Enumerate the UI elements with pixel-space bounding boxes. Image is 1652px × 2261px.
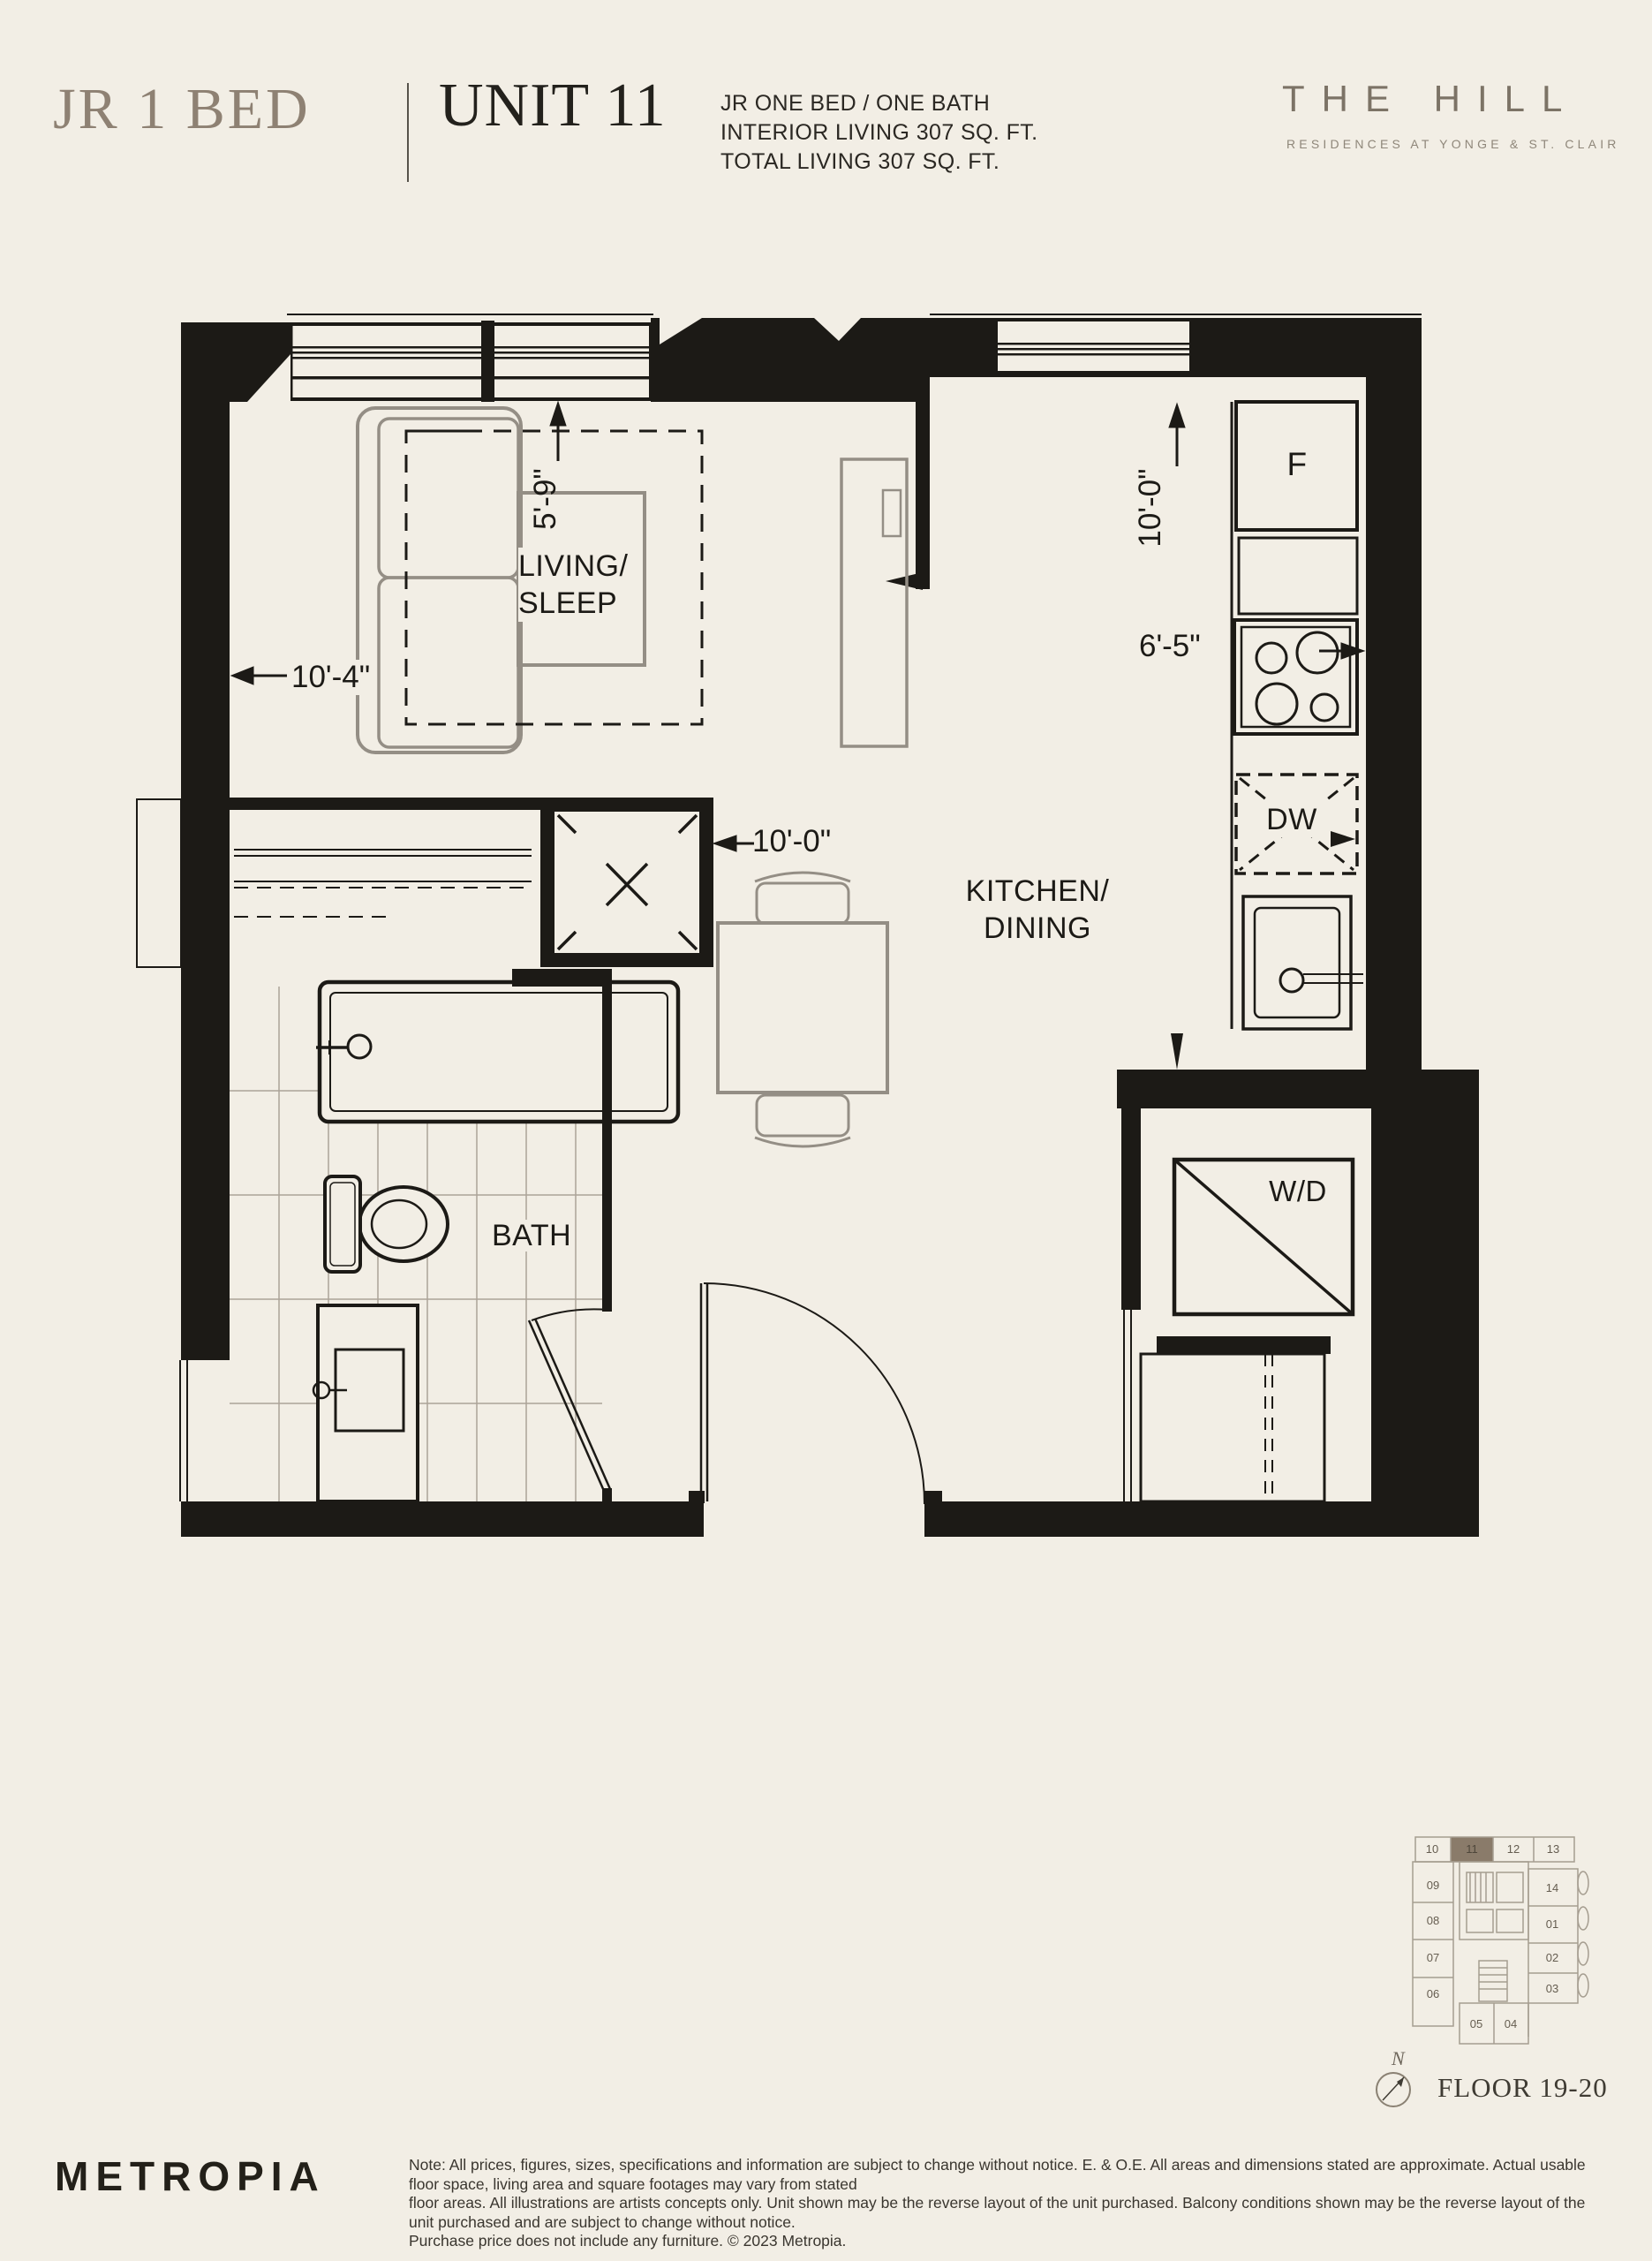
brand-logo: THE HILL <box>1282 78 1579 120</box>
spec-interior-living: INTERIOR LIVING 307 SQ. FT. <box>720 118 1038 147</box>
disclaimer-line-3: Purchase price does not include any furn… <box>409 2232 1614 2251</box>
keyplan-unit-11-highlighted: 11 <box>1460 1842 1484 1856</box>
toilet <box>325 1176 448 1272</box>
dim-kitchen-width: 6'-5" <box>1139 629 1201 664</box>
plan-type-title: JR 1 BED <box>53 76 311 143</box>
keyplan-unit-12: 12 <box>1501 1842 1526 1856</box>
keyplan-unit-13: 13 <box>1541 1842 1565 1856</box>
disclaimer-line-1: Note: All prices, figures, sizes, specif… <box>409 2156 1614 2194</box>
bath-door <box>529 1309 610 1491</box>
dim-living-width: 10'-4" <box>289 660 373 695</box>
keyplan-unit-02: 02 <box>1540 1951 1565 1964</box>
dimension-arrows <box>231 402 1364 851</box>
entry-door <box>701 1283 924 1504</box>
dishwasher-arrow <box>1331 831 1355 847</box>
cooktop <box>1234 620 1357 734</box>
appliance-label-dishwasher: DW <box>1257 802 1326 837</box>
entry-closet <box>1141 1354 1324 1501</box>
sofa <box>358 408 521 752</box>
disclaimer-text: Note: All prices, figures, sizes, specif… <box>409 2156 1614 2251</box>
floor-plan-drawing <box>124 309 1501 1546</box>
keyplan-unit-09: 09 <box>1421 1879 1445 1892</box>
keyplan-unit-10: 10 <box>1420 1842 1445 1856</box>
media-panel <box>841 459 907 746</box>
floor-range-label: FLOOR 19-20 <box>1437 2072 1608 2104</box>
dim-kitchen-depth: 10'-0" <box>1133 442 1172 574</box>
keyplan-unit-05: 05 <box>1464 2017 1489 2030</box>
bathtub <box>316 982 678 1122</box>
exterior-notch <box>137 799 181 967</box>
keyplan-unit-04: 04 <box>1498 2017 1523 2030</box>
kitchen-sink <box>1243 896 1363 1029</box>
metropia-logo: METROPIA <box>55 2152 326 2200</box>
appliance-label-fridge: F <box>1279 446 1316 483</box>
keyplan-unit-03: 03 <box>1540 1982 1565 1995</box>
vanity-sink <box>313 1305 418 1501</box>
keyplan-unit-08: 08 <box>1421 1914 1445 1927</box>
keyplan-unit-01: 01 <box>1540 1917 1565 1931</box>
disclaimer-line-2: floor areas. All illustrations are artis… <box>409 2194 1614 2232</box>
spec-total-living: TOTAL LIVING 307 SQ. FT. <box>720 147 1038 177</box>
keyplan-unit-06: 06 <box>1421 1987 1445 2000</box>
keyplan-unit-14: 14 <box>1540 1881 1565 1894</box>
dim-closet-width: 10'-0" <box>752 824 831 859</box>
window-band-left <box>287 314 653 401</box>
unit-specs: JR ONE BED / ONE BATH INTERIOR LIVING 30… <box>720 89 1038 177</box>
dining-set <box>718 873 887 1146</box>
brand-subtitle: RESIDENCES AT YONGE & ST. CLAIR <box>1286 137 1620 151</box>
wardrobe-shelves <box>234 850 532 917</box>
compass-north-label: N <box>1392 2047 1405 2070</box>
room-label-kitchen-dining: KITCHEN/ DINING <box>945 873 1130 947</box>
counter-box <box>1239 538 1357 614</box>
keyplan-unit-07: 07 <box>1421 1951 1445 1964</box>
unit-number-title: UNIT 11 <box>439 71 667 141</box>
dim-living-depth: 5'-9" <box>528 433 567 565</box>
appliance-label-washer-dryer: W/D <box>1254 1173 1342 1210</box>
floorplan-page: JR 1 BED UNIT 11 JR ONE BED / ONE BATH I… <box>0 0 1652 2261</box>
header-divider <box>407 83 409 182</box>
room-label-bath: BATH <box>488 1220 575 1251</box>
spec-bed-bath: JR ONE BED / ONE BATH <box>720 89 1038 118</box>
